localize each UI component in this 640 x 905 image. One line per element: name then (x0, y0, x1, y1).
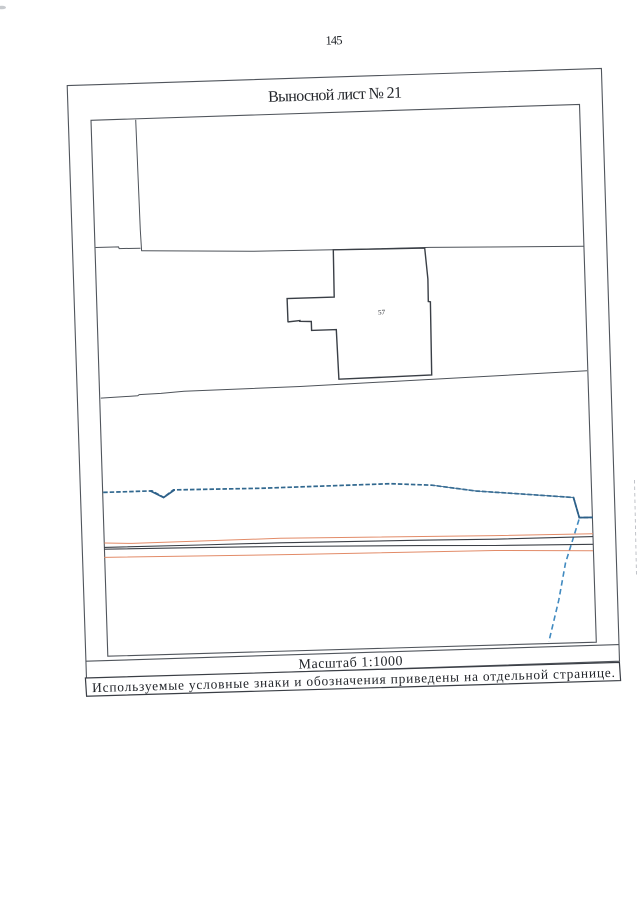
svg-text:57: 57 (378, 308, 386, 316)
svg-text:145: 145 (325, 33, 342, 48)
svg-text:Выносной лист № 21: Выносной лист № 21 (268, 85, 402, 106)
